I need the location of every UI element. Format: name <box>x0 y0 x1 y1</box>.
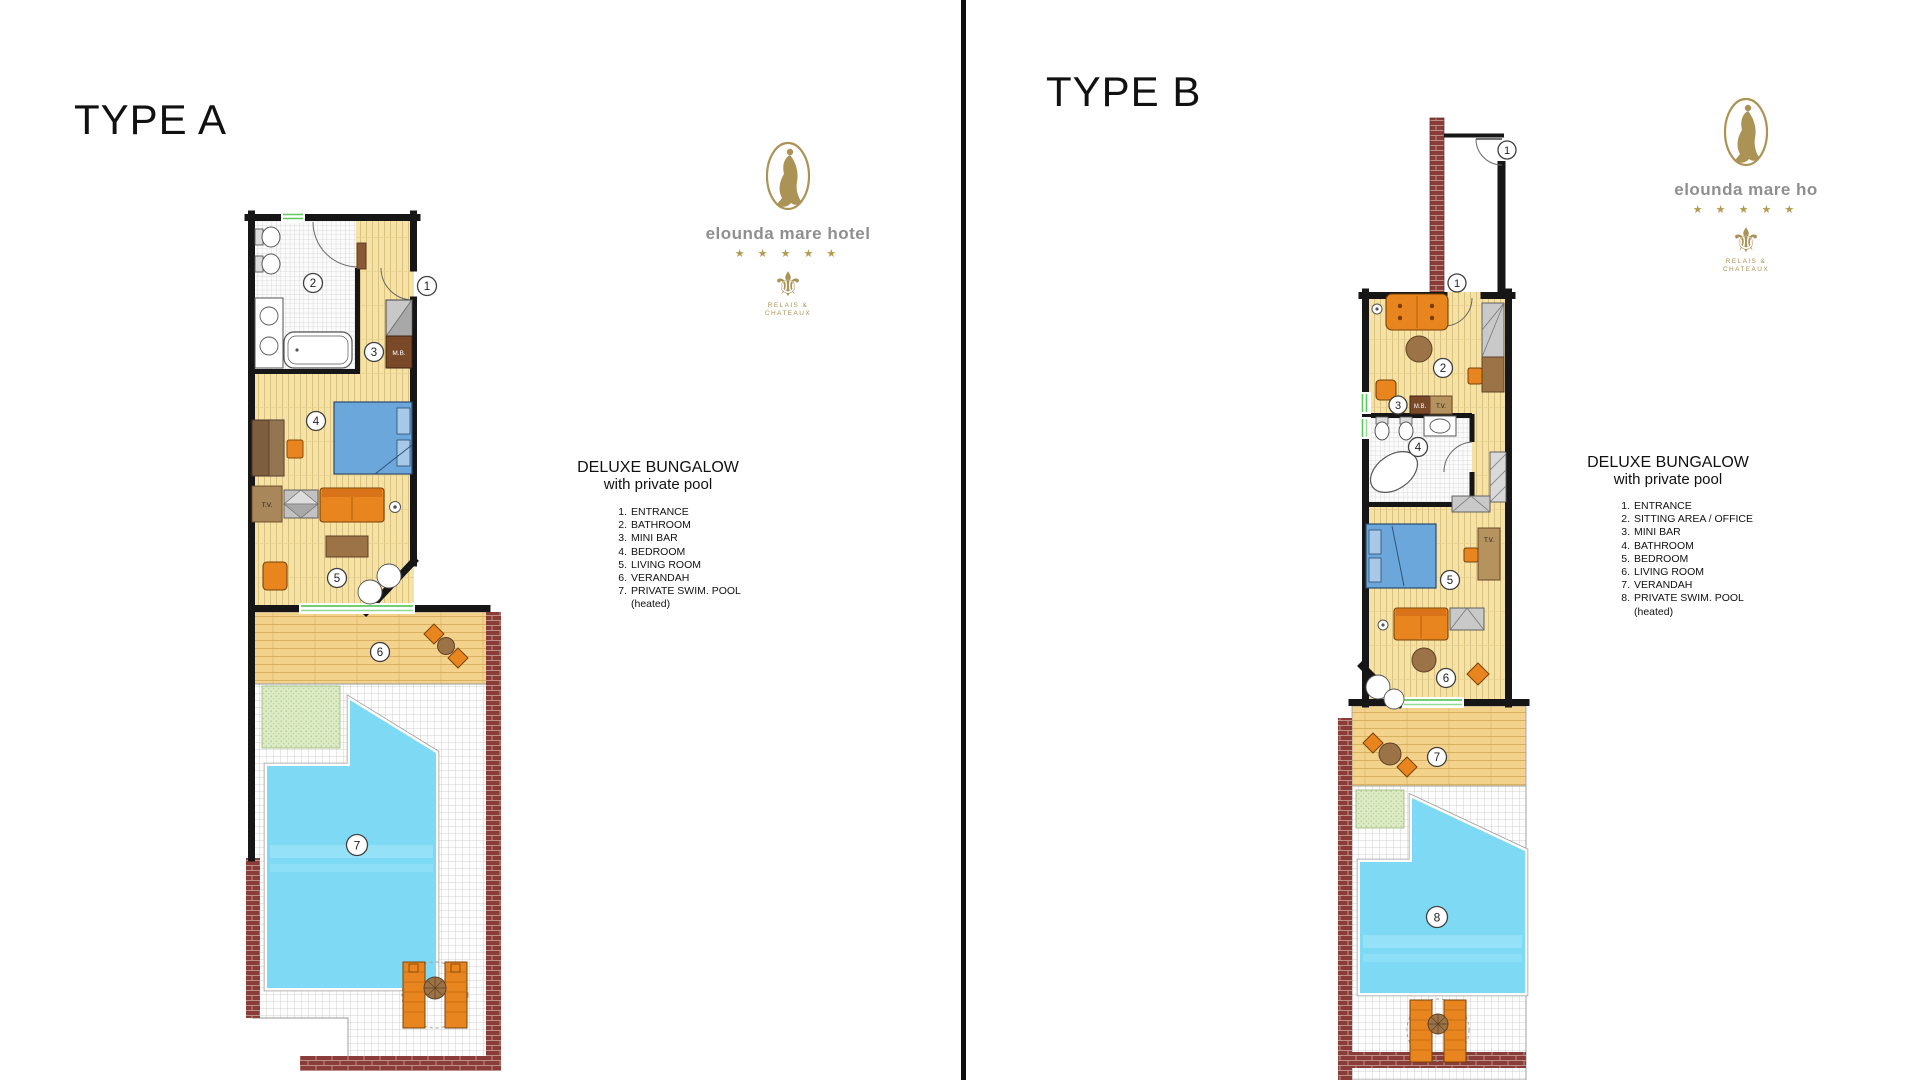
b-room-marker-entrance-outer: 1 <box>1498 141 1516 159</box>
a-sliding-door-verandah <box>299 603 415 614</box>
svg-text:1: 1 <box>1454 278 1460 290</box>
five-stars-icon: ★ ★ ★ ★ ★ <box>1648 203 1844 216</box>
a-minibar-label: M.B. <box>392 350 406 357</box>
a-armchair <box>263 562 287 590</box>
b-closet-living <box>1450 608 1484 630</box>
fleur-de-lis-icon: ⚜ <box>1648 224 1844 258</box>
legend-b-subtitle: with private pool <box>1548 471 1788 488</box>
b-hallway-closet <box>1490 452 1506 502</box>
b-stool-bedroom <box>1464 548 1478 562</box>
svg-text:7: 7 <box>1434 752 1440 764</box>
a-grass-patch <box>262 686 340 748</box>
a-room-marker-bathroom: 2 <box>304 274 323 293</box>
b-brick-border-bottom <box>1352 1052 1526 1068</box>
b-sofa-living <box>1394 608 1448 640</box>
b-tv-label-sitting: T.V. <box>1436 404 1446 410</box>
a-room-marker-living: 5 <box>328 569 347 588</box>
legend-a-subtitle: with private pool <box>538 476 778 493</box>
svg-text:4: 4 <box>1415 442 1422 454</box>
type-a-title: TYPE A <box>74 98 227 142</box>
type-b-plan: M.B. T.V. <box>1338 118 1526 1080</box>
b-corridor-brick-wall <box>1430 118 1444 294</box>
relais-text-line1: RELAIS & <box>1648 258 1844 266</box>
a-tv-cabinet: T.V. <box>252 486 282 522</box>
legend-b-items: 1.ENTRANCE 2.SITTING AREA / OFFICE 3.MIN… <box>1616 500 1753 619</box>
svg-text:3: 3 <box>1395 400 1401 412</box>
legend-b-title: DELUXE BUNGALOW <box>1548 454 1788 471</box>
b-room-marker-bedroom: 5 <box>1441 571 1460 590</box>
b-desk <box>1482 357 1504 392</box>
legend-item: 4.BATHROOM <box>1616 540 1753 553</box>
b-ceiling-fan-icon-sitting <box>1372 304 1382 314</box>
a-tv-stand <box>284 490 318 518</box>
svg-text:3: 3 <box>371 347 377 359</box>
a-closet <box>386 300 412 336</box>
legend-item: 1.ENTRANCE <box>613 506 741 519</box>
svg-text:1: 1 <box>424 281 430 293</box>
b-room-marker-verandah: 7 <box>1428 748 1447 767</box>
b-round-table-living <box>1412 648 1436 672</box>
legend-a-header: DELUXE BUNGALOW with private pool <box>538 459 778 493</box>
svg-text:1: 1 <box>1504 145 1510 157</box>
a-tv-label: T.V. <box>262 502 273 509</box>
b-tv-label-bedroom: T.V. <box>1484 538 1494 544</box>
legend-item: 5.LIVING ROOM <box>613 559 741 572</box>
legend-item: 3.MINI BAR <box>613 532 741 545</box>
relais-text-line1: RELAIS & <box>690 302 886 310</box>
b-room-marker-minibar: 3 <box>1389 396 1407 414</box>
legend-b-header: DELUXE BUNGALOW with private pool <box>1548 454 1788 488</box>
legend-item: 3.MINI BAR <box>1616 526 1753 539</box>
svg-text:5: 5 <box>1447 575 1453 587</box>
hotel-name: elounda mare ho <box>1648 180 1844 200</box>
a-window-top <box>281 211 305 223</box>
svg-text:6: 6 <box>377 647 383 659</box>
b-brick-border-left <box>1338 718 1352 1080</box>
a-stool <box>287 440 303 458</box>
floorplan-sheet: M.B. T.V. <box>0 0 1920 1080</box>
a-room-marker-verandah: 6 <box>371 643 390 662</box>
svg-text:5: 5 <box>334 573 340 585</box>
legend-item-note: (heated) <box>631 598 741 611</box>
hotel-name: elounda mare hotel <box>690 224 886 244</box>
a-room-marker-minibar: 3 <box>365 343 384 362</box>
relais-text-line2: CHATEAUX <box>1648 266 1844 274</box>
svg-text:4: 4 <box>313 416 320 428</box>
b-bed <box>1366 524 1436 588</box>
a-brick-border-right <box>486 612 501 1070</box>
a-brick-border-bottom <box>300 1056 501 1071</box>
legend-item: 5.BEDROOM <box>1616 553 1753 566</box>
fleur-de-lis-icon: ⚜ <box>690 268 886 302</box>
svg-text:7: 7 <box>354 839 361 853</box>
svg-text:6: 6 <box>1443 673 1449 685</box>
legend-item: 6.LIVING ROOM <box>1616 566 1753 579</box>
svg-text:2: 2 <box>310 278 316 290</box>
legend-item: 2.BATHROOM <box>613 519 741 532</box>
a-room-marker-pool: 7 <box>347 835 368 856</box>
a-ceiling-fan-icon <box>390 502 401 513</box>
legend-item: 7.PRIVATE SWIM. POOL <box>613 585 741 598</box>
type-a-plan: M.B. T.V. <box>246 211 501 1071</box>
a-bed <box>334 402 412 474</box>
b-grass-patch <box>1356 790 1404 828</box>
type-b-title: TYPE B <box>1046 70 1201 114</box>
a-wardrobe-door <box>269 420 284 476</box>
b-minibar-label: M.B. <box>1414 404 1427 410</box>
a-room-marker-entrance: 1 <box>418 277 437 296</box>
elounda-lady-oval-icon <box>1723 96 1769 168</box>
elounda-lady-oval-icon <box>765 140 811 212</box>
legend-item: 4.BEDROOM <box>613 546 741 559</box>
svg-text:2: 2 <box>1440 363 1446 375</box>
b-minibar-cabinet: M.B. <box>1410 396 1430 414</box>
b-room-marker-bathroom: 4 <box>1409 438 1428 457</box>
legend-item: 6.VERANDAH <box>613 572 741 585</box>
b-ceiling-fan-icon-living <box>1378 620 1388 630</box>
hotel-logo-b: elounda mare ho ★ ★ ★ ★ ★ ⚜ RELAIS & CHA… <box>1648 96 1844 274</box>
b-room-marker-entrance-inner: 1 <box>1448 274 1466 292</box>
legend-a-items: 1.ENTRANCE 2.BATHROOM 3.MINI BAR 4.BEDRO… <box>613 506 741 612</box>
legend-a-title: DELUXE BUNGALOW <box>538 459 778 476</box>
legend-item: 8.PRIVATE SWIM. POOL <box>1616 592 1753 605</box>
page-divider <box>961 0 966 1080</box>
b-desk-chair <box>1468 368 1482 384</box>
a-room-marker-bedroom: 4 <box>307 412 326 431</box>
a-coffee-table <box>326 536 368 557</box>
five-stars-icon: ★ ★ ★ ★ ★ <box>690 247 886 260</box>
b-round-table-sitting <box>1406 336 1432 362</box>
a-brick-border-left <box>246 858 260 1018</box>
b-room-marker-sitting: 2 <box>1434 359 1453 378</box>
b-sliding-door-verandah <box>1402 697 1464 708</box>
b-room-marker-pool: 8 <box>1427 907 1448 928</box>
legend-item: 2.SITTING AREA / OFFICE <box>1616 513 1753 526</box>
svg-text:8: 8 <box>1434 911 1441 925</box>
legend-item: 1.ENTRANCE <box>1616 500 1753 513</box>
b-closet-bedroom <box>1452 496 1490 512</box>
b-closet-sitting <box>1482 303 1504 357</box>
b-sofa-sitting <box>1386 294 1448 330</box>
b-tv-cabinet-sitting: T.V. <box>1430 396 1452 414</box>
b-tv-cabinet-bedroom: T.V. <box>1478 528 1500 580</box>
relais-text-line2: CHATEAUX <box>690 310 886 318</box>
a-minibar-cabinet: M.B. <box>386 336 412 368</box>
a-sofa <box>320 488 384 522</box>
hotel-logo-a: elounda mare hotel ★ ★ ★ ★ ★ ⚜ RELAIS & … <box>690 140 886 318</box>
legend-item-note: (heated) <box>1634 606 1753 619</box>
b-room-marker-living: 6 <box>1437 669 1456 688</box>
legend-item: 7.VERANDAH <box>1616 579 1753 592</box>
